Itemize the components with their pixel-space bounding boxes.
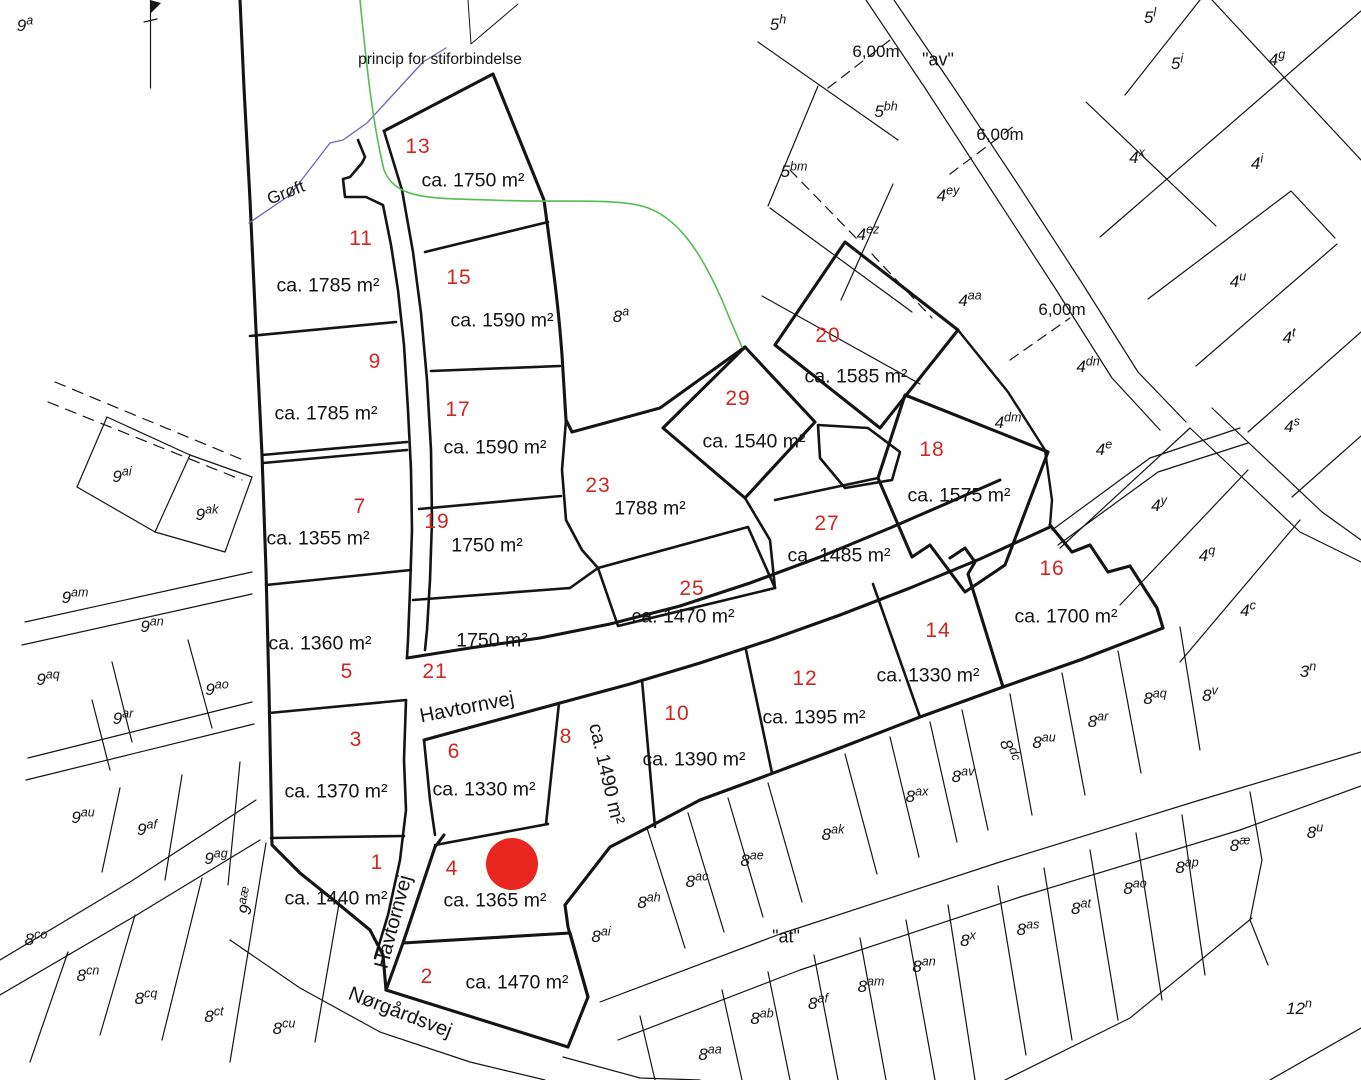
cadastral-label-5bh: 5bh	[874, 102, 897, 122]
plot-number-3[interactable]: 3	[350, 728, 363, 752]
plot-number-20[interactable]: 20	[815, 324, 840, 348]
plot-number-5[interactable]: 5	[341, 660, 354, 684]
cadastral-label-4q: 4q	[1199, 546, 1215, 566]
cadastral-label-9ak: 9ak	[196, 505, 219, 525]
plot-area-23: 1788 m²	[614, 498, 686, 521]
cadastral-label-9ai: 9ai	[112, 467, 131, 487]
plot-number-15[interactable]: 15	[446, 266, 471, 290]
plot-area-2: ca. 1470 m²	[466, 972, 569, 995]
cadastral-label-9au: 9au	[71, 808, 94, 828]
plot-area-3: ca. 1370 m²	[285, 781, 388, 804]
parcel-line-network	[0, 0, 1361, 1080]
plot-area-9: ca. 1785 m²	[275, 403, 378, 426]
cadastral-label-8aa: 8aa	[698, 1045, 721, 1065]
cadastral-label-9af: 9af	[137, 820, 157, 840]
plot-number-13[interactable]: 13	[405, 135, 430, 159]
cadastral-label-8at: 8at	[1071, 899, 1091, 919]
cadastral-label-8aq: 8aq	[1143, 689, 1166, 709]
plot-number-8[interactable]: 8	[560, 725, 573, 749]
cadastral-label-4aa: 4aa	[958, 291, 981, 311]
plot-area-21: 1750 m²	[456, 630, 528, 653]
cadastral-label-9ar: 9ar	[113, 709, 134, 729]
plot-number-16[interactable]: 16	[1039, 557, 1064, 581]
cadastral-map: 1ca. 1440 m²2ca. 1470 m²3ca. 1370 m²4ca.…	[0, 0, 1361, 1080]
plot-area-1: ca. 1440 m²	[285, 888, 388, 911]
cadastral-label-9ag: 9ag	[204, 849, 227, 869]
cadastral-label-5l: 5l	[1144, 8, 1156, 28]
plot-number-14[interactable]: 14	[925, 619, 950, 643]
cadastral-label-12n: 12n	[1286, 999, 1312, 1019]
plot-number-1[interactable]: 1	[371, 851, 384, 875]
selected-plot-marker[interactable]	[486, 838, 538, 890]
plot-number-10[interactable]: 10	[664, 702, 689, 726]
cadastral-label-8v: 8v	[1202, 686, 1218, 706]
note-leader-lines	[468, 0, 518, 44]
plot-area-5: ca. 1360 m²	[269, 633, 372, 656]
survey-marker	[144, 0, 161, 88]
cadastral-label-4ey: 4ey	[937, 186, 960, 206]
background-parcel-lines	[0, 0, 1361, 1080]
plot-number-6[interactable]: 6	[448, 740, 461, 764]
cadastral-label-8ab: 8ab	[750, 1009, 773, 1029]
plot-area-20: ca. 1585 m²	[805, 366, 908, 389]
cadastral-label-8ah: 8ah	[637, 893, 660, 913]
plot-area-11: ca. 1785 m²	[277, 275, 380, 298]
plot-number-7[interactable]: 7	[354, 495, 367, 519]
cadastral-label-8u: 8u	[1307, 823, 1323, 843]
cadastral-label-9an: 9an	[140, 617, 163, 637]
plot-area-17: ca. 1590 m²	[444, 437, 547, 460]
measurement-label-1: 6,00m	[976, 125, 1023, 145]
cadastral-label-8as: 8as	[1017, 920, 1040, 940]
plot-number-18[interactable]: 18	[919, 438, 944, 462]
plot-area-18: ca. 1575 m²	[908, 485, 1011, 508]
plot-number-17[interactable]: 17	[445, 398, 470, 422]
cadastral-label-8a: 8a	[613, 307, 629, 327]
cadastral-label-8ax: 8ax	[906, 787, 929, 807]
plot-number-27[interactable]: 27	[814, 512, 839, 536]
plot-area-27: ca. 1485 m²	[788, 545, 891, 568]
plot-area-14: ca. 1330 m²	[877, 665, 980, 688]
cadastral-label-8ac: 8ac	[686, 872, 709, 892]
plot-area-4: ca. 1365 m²	[444, 890, 547, 913]
cadastral-label-4g: 4g	[1269, 50, 1285, 70]
cadastral-label-8co: 8co	[25, 930, 48, 950]
plot-area-15: ca. 1590 m²	[451, 310, 554, 333]
cadastral-label-8av: 8av	[952, 767, 975, 787]
cadastral-label-4dn: 4dn	[1076, 357, 1099, 377]
cadastral-label-8an: 8an	[912, 957, 935, 977]
plot-number-12[interactable]: 12	[792, 667, 817, 691]
cadastral-label-8cq: 8cq	[135, 989, 158, 1009]
cadastral-label-8am: 8am	[858, 977, 885, 997]
plot-area-25: ca. 1470 m²	[632, 606, 735, 629]
plot-number-29[interactable]: 29	[725, 387, 750, 411]
cadastral-label-8ar: 8ar	[1088, 712, 1109, 732]
cadastral-label-4dm: 4dm	[995, 413, 1022, 433]
cadastral-label-4s: 4s	[1284, 417, 1300, 437]
plot-number-23[interactable]: 23	[585, 474, 610, 498]
cadastral-label-4c: 4c	[1240, 601, 1256, 621]
plot-number-11[interactable]: 11	[349, 227, 373, 251]
cadastral-label-3n: 3n	[1300, 662, 1316, 682]
measurement-label-2: 6,00m	[1038, 300, 1085, 320]
path-principle-note: princip for stiforbindelse	[358, 51, 522, 69]
cadastral-label-8æ: 8æ	[1230, 836, 1251, 856]
plot-number-25[interactable]: 25	[679, 577, 704, 601]
cadastral-label-8au: 8au	[1032, 733, 1055, 753]
cadastral-label-9aq: 9aq	[36, 670, 59, 690]
cadastral-label-8ap: 8ap	[1175, 858, 1198, 878]
cadastral-label-8ct: 8ct	[204, 1007, 223, 1027]
plot-number-4[interactable]: 4	[446, 857, 459, 881]
measurement-label-0: 6,00m	[852, 42, 899, 62]
plot-area-29: ca. 1540 m²	[703, 431, 806, 454]
cadastral-label-8ai: 8ai	[591, 927, 610, 947]
plot-number-9[interactable]: 9	[369, 350, 382, 374]
cadastral-label-9ao: 9ao	[205, 680, 228, 700]
cadastral-label-9am: 9am	[62, 588, 89, 608]
plot-number-2[interactable]: 2	[421, 965, 434, 989]
cadastral-label-8ak: 8ak	[822, 825, 845, 845]
plot-area-7: ca. 1355 m²	[267, 528, 370, 551]
cadastral-label-4e: 4e	[1096, 440, 1112, 460]
cadastral-label-8x: 8x	[960, 931, 976, 951]
cadastral-label-8af: 8af	[808, 994, 828, 1014]
cadastral-label-8ao: 8ao	[1123, 879, 1146, 899]
cadastral-label-8cn: 8cn	[77, 966, 100, 986]
cadastral-label-5bm: 5bm	[781, 162, 808, 182]
plot-area-6: ca. 1330 m²	[433, 779, 536, 802]
plot-area-13: ca. 1750 m²	[422, 170, 525, 193]
plot-area-16: ca. 1700 m²	[1015, 606, 1118, 629]
cadastral-label-4i: 4i	[1251, 154, 1263, 174]
cadastral-label-5i: 5i	[1171, 54, 1183, 74]
cadastral-label-9a: 9a	[17, 16, 33, 36]
plot-area-12: ca. 1395 m²	[763, 707, 866, 730]
plot-area-19: 1750 m²	[451, 535, 523, 558]
cadastral-label-4x: 4x	[1129, 148, 1145, 168]
cadastral-label-4t: 4t	[1283, 328, 1296, 348]
area-name-label-1: "at"	[772, 927, 800, 948]
cadastral-label-8ae: 8ae	[740, 851, 763, 871]
area-name-label-0: "av"	[922, 50, 954, 71]
plot-area-10: ca. 1390 m²	[643, 749, 746, 772]
plot-number-21[interactable]: 21	[422, 660, 447, 684]
cadastral-label-4y: 4y	[1151, 496, 1167, 516]
cadastral-label-4u: 4u	[1230, 272, 1246, 292]
cadastral-label-4ez: 4ez	[857, 225, 880, 245]
plot-number-19[interactable]: 19	[424, 510, 449, 534]
cadastral-label-5h: 5h	[770, 15, 786, 35]
cadastral-label-8cu: 8cu	[273, 1019, 296, 1039]
